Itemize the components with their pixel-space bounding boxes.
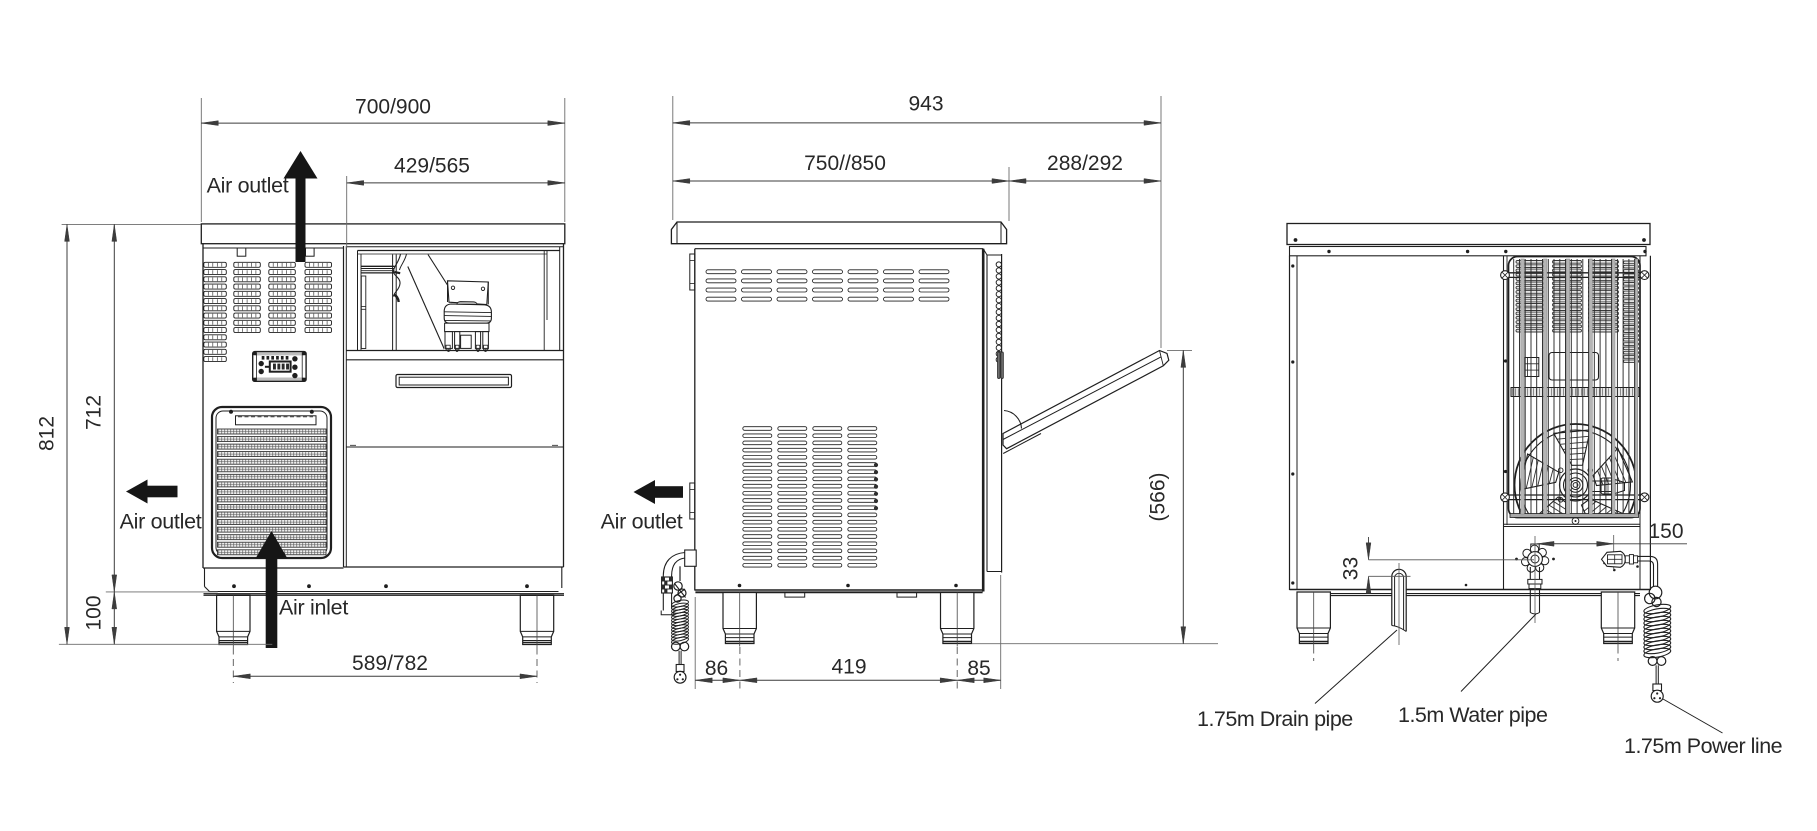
svg-text:288/292: 288/292 bbox=[1047, 152, 1123, 175]
svg-text:1.75m Power line: 1.75m Power line bbox=[1624, 734, 1782, 758]
svg-text:86: 86 bbox=[705, 657, 728, 680]
svg-text:Air inlet: Air inlet bbox=[279, 596, 348, 620]
svg-text:1.5m Water pipe: 1.5m Water pipe bbox=[1398, 703, 1547, 727]
svg-text:943: 943 bbox=[908, 93, 943, 116]
svg-text:(566): (566) bbox=[1147, 472, 1170, 521]
svg-text:Air outlet: Air outlet bbox=[120, 510, 202, 534]
svg-text:150: 150 bbox=[1648, 520, 1683, 543]
svg-text:429/565: 429/565 bbox=[394, 155, 470, 178]
svg-text:589/782: 589/782 bbox=[352, 652, 428, 675]
svg-text:812: 812 bbox=[36, 416, 59, 451]
svg-text:33: 33 bbox=[1340, 557, 1363, 580]
svg-text:Air outlet: Air outlet bbox=[207, 174, 289, 198]
svg-text:Air outlet: Air outlet bbox=[601, 510, 683, 534]
svg-text:712: 712 bbox=[83, 395, 106, 430]
svg-text:100: 100 bbox=[83, 595, 106, 630]
svg-text:750//850: 750//850 bbox=[804, 152, 886, 175]
svg-text:85: 85 bbox=[967, 657, 990, 680]
svg-text:700/900: 700/900 bbox=[355, 96, 431, 119]
svg-text:1.75m Drain pipe: 1.75m Drain pipe bbox=[1197, 707, 1353, 731]
svg-text:419: 419 bbox=[831, 656, 866, 679]
